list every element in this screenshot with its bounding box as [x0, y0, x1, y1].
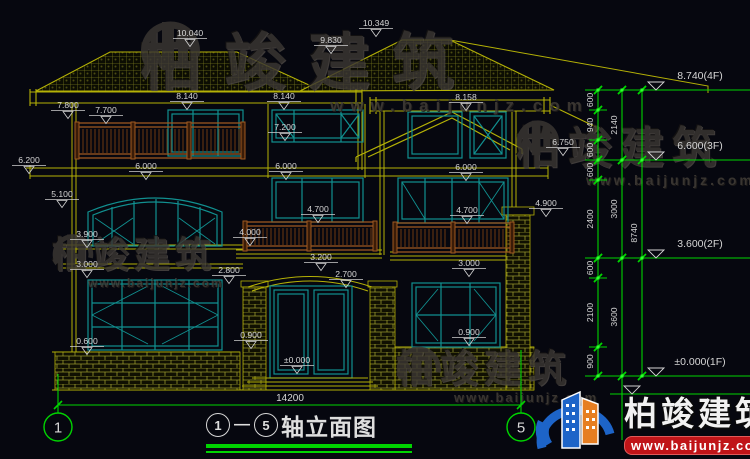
dim-node: [641, 257, 644, 260]
seg-label: 940: [585, 118, 595, 133]
elevation-triangle: [82, 348, 92, 355]
dim-node: [621, 375, 624, 378]
elevation-label: 6.000: [135, 161, 157, 171]
dim-node: [597, 277, 600, 280]
level-label: 8.740(4F): [677, 70, 723, 82]
elevation-label-group: 10.0409.83010.3498.1408.1408.1587.8007.7…: [12, 18, 580, 374]
brand-logo-name: 柏竣建筑: [624, 387, 750, 435]
title-dash: —: [234, 416, 250, 434]
title-underline-thick: [206, 444, 412, 448]
seg-label: 2140: [609, 115, 619, 134]
elevation-triangle: [82, 271, 92, 278]
level-label: 3.600(2F): [677, 238, 723, 250]
level-label: 6.600(3F): [677, 140, 723, 152]
elevation-triangle: [63, 112, 73, 119]
dim-node: [597, 139, 600, 142]
seg-label: 600: [585, 143, 595, 158]
elevation-triangle: [313, 216, 323, 223]
elevation-label: 3.900: [76, 229, 98, 239]
elevation-triangle: [57, 201, 67, 208]
brand-logo-icon: [528, 386, 620, 456]
elevation-label: 3.000: [458, 258, 480, 268]
dim-node: [621, 159, 624, 162]
elevation-label: 6.000: [455, 162, 477, 172]
dim-node: [597, 346, 600, 349]
elevation-triangle: [245, 239, 255, 246]
elevation-label: 8.140: [273, 91, 295, 101]
elevation-triangle: [280, 134, 290, 141]
elevation-label: 6.200: [18, 155, 40, 165]
seg-label: 3600: [609, 307, 619, 326]
elevation-triangle: [246, 342, 256, 349]
cad-elevation-screenshot: 柏竣建筑 www.baijunjz.com 柏竣建筑 www.baijunjz.…: [0, 0, 750, 459]
right-dimension-stack: 8.740(4F)6.600(3F)3.600(2F)±0.000(1F)600…: [585, 70, 750, 440]
elevation-triangle: [558, 149, 568, 156]
elevation-triangle: [279, 103, 289, 110]
elevation-label: 3.200: [310, 252, 332, 262]
elevation-label: 7.700: [95, 105, 117, 115]
elevation-triangle: [101, 117, 111, 124]
elevation-triangle: [281, 173, 291, 180]
drawing-title-block: 1 — 5 轴立面图: [206, 408, 412, 453]
elevation-label: 7.200: [274, 122, 296, 132]
title-axis-end-bubble: 5: [254, 413, 278, 437]
dim-node: [597, 179, 600, 182]
dim-node: [641, 89, 644, 92]
brand-logo: 柏竣建筑 www.baijunjz.com: [528, 386, 750, 456]
elevation-label: 4.700: [307, 204, 329, 214]
seg-label: 900: [585, 354, 595, 369]
level-triangle: [648, 82, 664, 90]
elevation-triangle: [341, 281, 351, 288]
elevation-triangle: [141, 173, 151, 180]
elevation-triangle: [292, 367, 302, 374]
elevation-label: 8.158: [455, 92, 477, 102]
svg-text:5: 5: [517, 420, 525, 437]
seg-label: 600: [585, 93, 595, 108]
dim-node: [597, 109, 600, 112]
dim-node: [641, 159, 644, 162]
elevation-label: 8.140: [176, 91, 198, 101]
axis-bubble-left: 1: [44, 413, 72, 441]
elevation-label: ±0.000: [284, 355, 310, 365]
elevation-label: 2.700: [335, 269, 357, 279]
elevation-label: 10.349: [363, 18, 390, 28]
elevation-label: 10.040: [177, 28, 204, 38]
title-axis-start-bubble: 1: [206, 413, 230, 437]
level-triangle: [648, 368, 664, 376]
elevation-triangle: [82, 241, 92, 248]
elevation-label: 3.000: [76, 259, 98, 269]
elevation-triangle: [371, 30, 381, 37]
elevation-triangle: [464, 270, 474, 277]
seg-label: 600: [585, 163, 595, 178]
elevation-label: 4.900: [535, 198, 557, 208]
elevation-label: 5.100: [51, 189, 73, 199]
level-triangle: [648, 250, 664, 258]
dim-node: [597, 159, 600, 162]
elevation-label: 4.000: [239, 227, 261, 237]
elevation-label: 6.750: [552, 137, 574, 147]
elevation-label: 4.700: [456, 205, 478, 215]
seg-label: 600: [585, 261, 595, 276]
elevation-label: 7.800: [57, 100, 79, 110]
elevation-label: 9.830: [320, 35, 342, 45]
elevation-triangle: [461, 174, 471, 181]
elevation-label: 0.600: [76, 336, 98, 346]
elevation-triangle: [461, 104, 471, 111]
dim-node: [641, 375, 644, 378]
dim-node: [621, 257, 624, 260]
seg-label: 2400: [585, 209, 595, 228]
elevation-triangle: [24, 167, 34, 174]
elevation-triangle: [541, 210, 551, 217]
dim-node: [621, 89, 624, 92]
title-underline-thin: [206, 451, 412, 453]
elevation-triangle: [224, 277, 234, 284]
level-triangle: [648, 152, 664, 160]
dim-node: [597, 375, 600, 378]
dim-node: [597, 89, 600, 92]
elevation-triangle: [464, 339, 474, 346]
seg-label: 8740: [629, 223, 639, 242]
elevation-triangle: [316, 264, 326, 271]
dim-14200: 14200: [276, 393, 304, 404]
drawing-title: 轴立面图: [281, 408, 377, 442]
level-label: ±0.000(1F): [674, 356, 725, 368]
elevation-label: 6.000: [275, 161, 297, 171]
seg-label: 3000: [609, 199, 619, 218]
dim-node: [597, 257, 600, 260]
seg-label: 2100: [585, 303, 595, 322]
elevation-triangle: [326, 47, 336, 54]
elevation-label: 0.900: [240, 330, 262, 340]
elevation-triangle: [462, 217, 472, 224]
elevation-label: 0.900: [458, 327, 480, 337]
brand-logo-site: www.baijunjz.com: [624, 436, 750, 455]
elevation-label: 2.800: [218, 265, 240, 275]
elevation-triangle: [182, 103, 192, 110]
elevation-triangle: [185, 40, 195, 47]
svg-text:1: 1: [54, 420, 62, 437]
